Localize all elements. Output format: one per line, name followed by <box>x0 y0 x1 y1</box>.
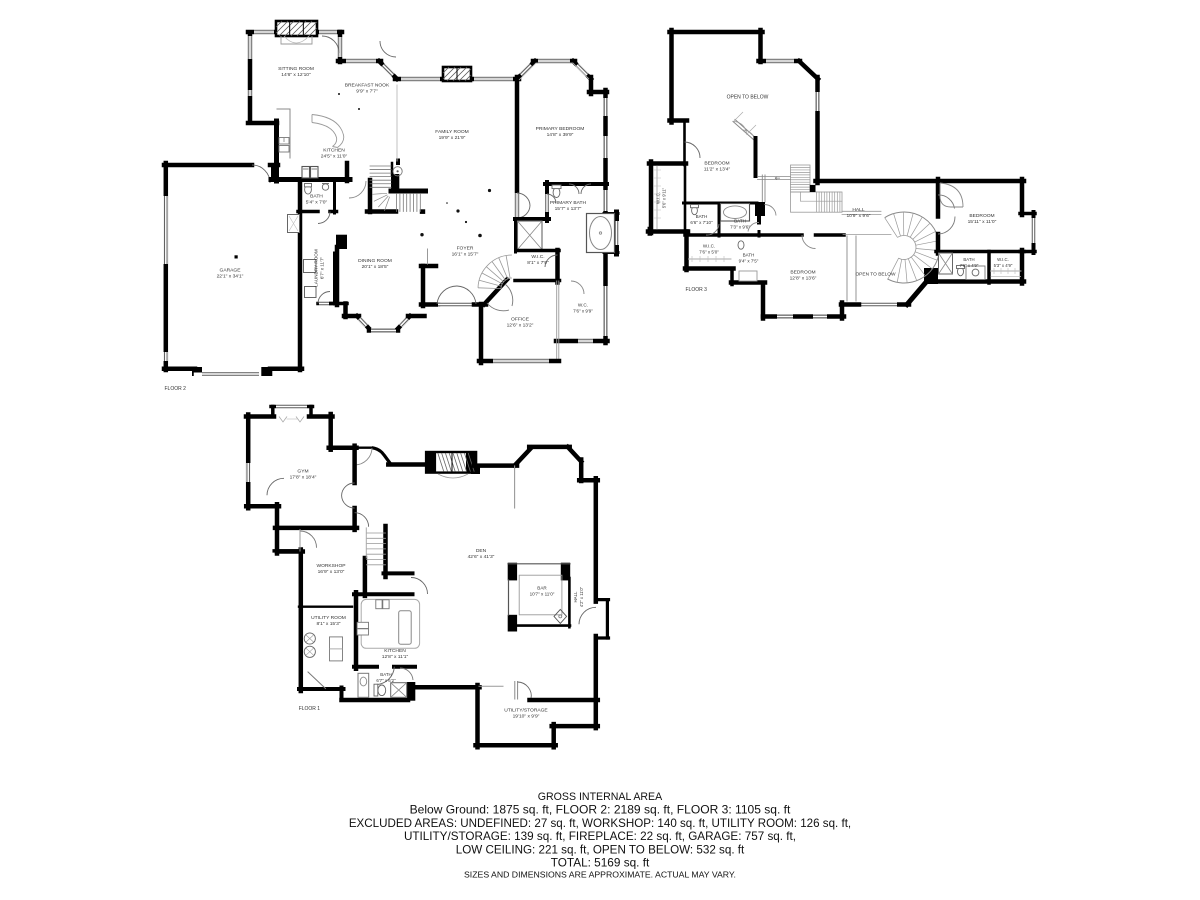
svg-text:W.I.C.: W.I.C. <box>703 244 715 249</box>
svg-text:GROSS INTERNAL AREA: GROSS INTERNAL AREA <box>538 791 663 803</box>
svg-text:42'6" x 41'3": 42'6" x 41'3" <box>468 554 495 560</box>
svg-text:BAR: BAR <box>537 586 547 591</box>
svg-text:BEDROOM: BEDROOM <box>790 270 815 276</box>
svg-text:FLOOR 2: FLOOR 2 <box>165 386 187 392</box>
svg-text:12'8" x 13'6": 12'8" x 13'6" <box>790 275 817 281</box>
svg-text:TOTAL: 5169 sq. ft: TOTAL: 5169 sq. ft <box>551 856 650 870</box>
svg-text:14'8" x 39'9": 14'8" x 39'9" <box>547 132 574 138</box>
svg-text:KITCHEN: KITCHEN <box>323 148 345 154</box>
svg-text:11'2" x 13'4": 11'2" x 13'4" <box>704 166 731 172</box>
svg-text:7'3" x 9'6": 7'3" x 9'6" <box>730 224 750 229</box>
svg-text:BATH: BATH <box>310 194 323 200</box>
svg-text:10'9" x 9'6": 10'9" x 9'6" <box>846 213 870 219</box>
svg-text:6'7" x 11'7": 6'7" x 11'7" <box>320 256 325 279</box>
svg-text:BEDROOM: BEDROOM <box>969 213 994 219</box>
svg-text:FAMILY ROOM: FAMILY ROOM <box>435 129 469 135</box>
svg-text:BATH: BATH <box>380 672 391 677</box>
svg-text:19'10" x 9'9": 19'10" x 9'9" <box>513 713 540 719</box>
svg-text:WORKSHOP: WORKSHOP <box>316 563 345 569</box>
svg-text:4'2" x 11'0": 4'2" x 11'0" <box>579 586 584 607</box>
svg-text:BATH: BATH <box>734 219 746 224</box>
svg-text:W.C.: W.C. <box>578 303 588 308</box>
svg-text:UTILITY/STORAGE: 139 sq. ft, F: UTILITY/STORAGE: 139 sq. ft, FIREPLACE: … <box>404 830 796 843</box>
svg-text:15'7" x 13'7": 15'7" x 13'7" <box>555 206 582 212</box>
svg-text:BREAKFAST NOOK: BREAKFAST NOOK <box>345 83 390 89</box>
svg-text:UTILITY/STORAGE: UTILITY/STORAGE <box>504 708 548 714</box>
svg-text:Below Ground: 1875 sq. ft, FLO: Below Ground: 1875 sq. ft, FLOOR 2: 2189… <box>410 803 791 817</box>
svg-text:SITTING ROOM: SITTING ROOM <box>278 66 314 72</box>
svg-text:6'7" x 6'2": 6'7" x 6'2" <box>376 678 396 683</box>
svg-text:19'9" x 21'9": 19'9" x 21'9" <box>439 135 466 141</box>
svg-text:5'6" x 9'11": 5'6" x 9'11" <box>662 187 667 208</box>
svg-text:SIZES AND DIMENSIONS ARE APPRO: SIZES AND DIMENSIONS ARE APPROXIMATE. AC… <box>464 870 736 880</box>
svg-text:PRIMARY BEDROOM: PRIMARY BEDROOM <box>536 126 585 132</box>
svg-text:8'1" x 15'3": 8'1" x 15'3" <box>316 621 340 627</box>
svg-text:BATH: BATH <box>743 253 755 258</box>
svg-text:BEDROOM: BEDROOM <box>704 161 729 167</box>
svg-text:9'4" x 7'5": 9'4" x 7'5" <box>739 258 759 263</box>
svg-text:W.I.C.: W.I.C. <box>997 257 1009 262</box>
svg-text:UTILITY ROOM: UTILITY ROOM <box>311 615 346 621</box>
svg-text:22'1" x 34'1": 22'1" x 34'1" <box>217 273 244 279</box>
svg-text:24'5" x 11'0": 24'5" x 11'0" <box>321 153 348 159</box>
svg-text:8'1" x 7'9": 8'1" x 7'9" <box>527 260 549 266</box>
svg-text:OFFICE: OFFICE <box>511 317 530 323</box>
svg-text:DINING ROOM: DINING ROOM <box>358 258 392 264</box>
svg-text:20'1" x 18'5": 20'1" x 18'5" <box>362 264 389 270</box>
svg-text:OPEN TO BELOW: OPEN TO BELOW <box>727 95 769 101</box>
svg-text:FOYER: FOYER <box>457 246 474 252</box>
svg-text:6'6" x 7'10": 6'6" x 7'10" <box>690 220 713 225</box>
svg-text:5'4" x 7'0": 5'4" x 7'0" <box>306 199 328 205</box>
svg-text:BATH: BATH <box>696 214 708 219</box>
svg-text:OPEN TO BELOW: OPEN TO BELOW <box>855 272 896 278</box>
svg-text:BATH: BATH <box>963 257 974 262</box>
svg-text:12'8" x 11'1": 12'8" x 11'1" <box>382 654 409 660</box>
svg-text:W.I.C.: W.I.C. <box>531 254 544 260</box>
svg-text:HALL: HALL <box>852 207 865 213</box>
svg-text:FLOOR 1: FLOOR 1 <box>299 706 321 712</box>
svg-text:7'6" x 9'9": 7'6" x 9'9" <box>573 308 593 313</box>
svg-text:16'9" x 13'0": 16'9" x 13'0" <box>318 569 345 575</box>
svg-text:16'1" x 15'7": 16'1" x 15'7" <box>452 251 479 257</box>
svg-text:12'6" x 13'2": 12'6" x 13'2" <box>507 322 534 328</box>
svg-text:9'9" x 7'7": 9'9" x 7'7" <box>356 88 378 94</box>
svg-text:DEN: DEN <box>476 548 487 554</box>
svg-text:EXCLUDED AREAS: UNDEFINED: 27: EXCLUDED AREAS: UNDEFINED: 27 sq. ft, WO… <box>349 817 851 830</box>
svg-text:15'11" x 11'0": 15'11" x 11'0" <box>968 219 997 225</box>
svg-text:7'6" x 5'0": 7'6" x 5'0" <box>699 249 719 254</box>
svg-text:W.I.C.: W.I.C. <box>656 192 661 204</box>
svg-text:GYM: GYM <box>297 469 308 475</box>
svg-text:17'8" x 18'4": 17'8" x 18'4" <box>290 474 317 480</box>
svg-text:10'7" x 11'0": 10'7" x 11'0" <box>530 591 555 596</box>
svg-text:7'6" x 4'9": 7'6" x 4'9" <box>960 263 979 268</box>
svg-text:GARAGE: GARAGE <box>220 268 242 274</box>
svg-text:PRIMARY BATH: PRIMARY BATH <box>550 200 587 206</box>
svg-text:FLOOR 3: FLOOR 3 <box>686 287 708 293</box>
svg-text:HALL: HALL <box>573 591 578 603</box>
svg-text:5'3" x 4'9": 5'3" x 4'9" <box>994 263 1013 268</box>
svg-text:KITCHEN: KITCHEN <box>384 648 406 654</box>
svg-text:14'6" x 12'10": 14'6" x 12'10" <box>281 72 311 78</box>
svg-text:LAUNDRY ROOM: LAUNDRY ROOM <box>314 249 319 287</box>
